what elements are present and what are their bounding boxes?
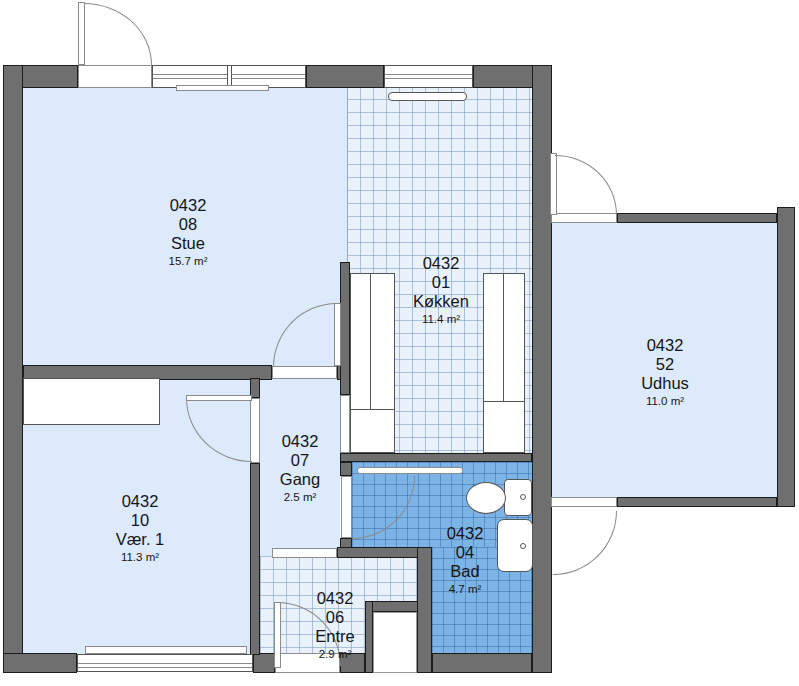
wall-bottom-1 (3, 653, 77, 673)
window-vaer1-bottom (77, 654, 253, 672)
wall-udhus-top (617, 213, 777, 223)
room-number: 01 (413, 273, 469, 292)
radiator-vaer1 (85, 646, 247, 654)
room-code: 0432 (447, 524, 484, 543)
room-label-gang: 0432 07 Gang 2.5 m² (280, 432, 320, 505)
room-number: 07 (280, 451, 320, 470)
wardrobe (23, 378, 160, 425)
room-label-bad: 0432 04 Bad 4.7 m² (447, 524, 484, 597)
door-opening-udhus-bottom (551, 497, 617, 507)
room-area: 2.5 m² (280, 489, 320, 505)
room-area: 11.3 m² (116, 549, 165, 565)
room-area: 11.4 m² (413, 311, 469, 327)
room-name: Køkken (413, 292, 469, 311)
room-label-koekken: 0432 01 Køkken 11.4 m² (413, 254, 469, 327)
kitchen-counter-left-divider (370, 274, 371, 409)
entrance-recess (373, 612, 417, 673)
bath-sliding-door (357, 467, 463, 474)
kitchen-shelf (388, 92, 467, 101)
wall-udhus-bottom (617, 497, 777, 507)
room-number: 08 (169, 215, 208, 234)
sink (497, 519, 533, 572)
wall-bottom-4 (432, 653, 532, 673)
room-number: 52 (641, 355, 689, 374)
room-number: 04 (447, 543, 484, 562)
wall-entre-bad (417, 547, 432, 673)
room-number: 10 (116, 511, 165, 530)
kitchen-open-boundary-line (347, 87, 348, 262)
wall-right (532, 65, 552, 673)
window-koekken-top (384, 65, 473, 88)
door-arc-udhus-top (555, 155, 617, 215)
wall-udhus-right (777, 207, 795, 507)
sink-drain (520, 543, 526, 549)
radiator-stue (176, 85, 269, 91)
room-code: 0432 (280, 432, 320, 451)
wall-left (3, 65, 23, 673)
room-label-vaer1: 0432 10 Vær. 1 11.3 m² (116, 492, 165, 565)
wall-bottom-2 (253, 653, 275, 673)
room-label-udhus: 0432 52 Udhus 11.0 m² (641, 336, 689, 409)
toilet-tank (504, 479, 532, 516)
room-area: 11.0 m² (641, 393, 689, 409)
room-code: 0432 (641, 336, 689, 355)
door-opening-stue-exterior (78, 65, 152, 88)
kitchen-counter-right-divider (503, 274, 504, 402)
room-code: 0432 (169, 196, 208, 215)
toilet-button (520, 494, 526, 500)
wall-bad-top (340, 453, 532, 462)
wall-koekken-left (340, 262, 350, 395)
room-number: 06 (315, 608, 354, 627)
room-code: 0432 (116, 492, 165, 511)
room-label-stue: 0432 08 Stue 15.7 m² (169, 196, 208, 269)
door-opening-stue-gang (272, 366, 337, 379)
room-name: Stue (169, 234, 208, 253)
wall-bad-left-upper (340, 462, 352, 476)
room-name: Vær. 1 (116, 530, 165, 549)
door-arc-udhus-bottom (553, 511, 617, 575)
room-area: 2.9 m² (315, 646, 354, 662)
door-arc-stue-exterior (84, 3, 152, 65)
kitchen-counter-left-line (351, 409, 394, 410)
room-label-entre: 0432 06 Entre 2.9 m² (315, 589, 354, 662)
door-opening-bad (341, 476, 352, 538)
room-code: 0432 (315, 589, 354, 608)
door-opening-gang-entre (272, 548, 337, 558)
room-name: Entre (315, 627, 354, 646)
door-opening-gang-koekken (340, 395, 350, 453)
kitchen-counter-right (483, 273, 525, 453)
toilet-bowl (466, 482, 506, 514)
wall-top-2 (306, 65, 384, 88)
kitchen-counter-right-line (484, 401, 524, 402)
room-area: 4.7 m² (447, 581, 484, 597)
room-name: Gang (280, 470, 320, 489)
wall-gang-left-lower (250, 463, 260, 655)
room-area: 15.7 m² (169, 253, 208, 269)
room-name: Bad (447, 562, 484, 581)
kitchen-counter-left (350, 273, 395, 453)
room-name: Udhus (641, 374, 689, 393)
wall-recess-left (365, 601, 373, 673)
room-code: 0432 (413, 254, 469, 273)
floor-plan: 0432 08 Stue 15.7 m² 0432 01 Køkken 11.4… (0, 0, 799, 686)
